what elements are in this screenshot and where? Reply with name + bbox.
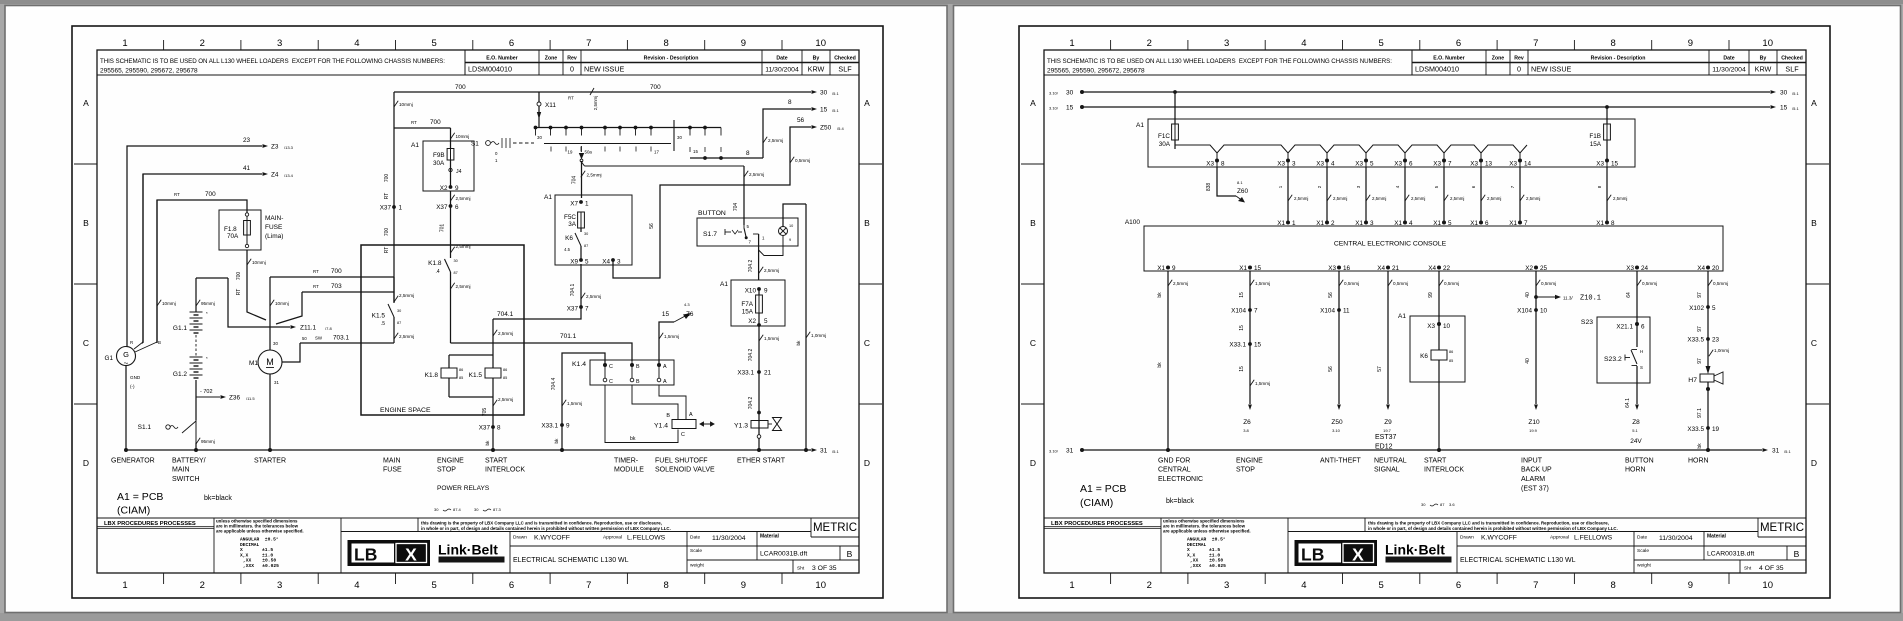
svg-text:56: 56 [1328, 292, 1334, 298]
svg-text:705: 705 [482, 408, 488, 417]
svg-text:2,5mmj: 2,5mmj [764, 268, 779, 273]
svg-text:X2: X2 [440, 185, 448, 192]
svg-text:G1: G1 [104, 355, 113, 362]
svg-text:K1.8: K1.8 [428, 260, 442, 267]
svg-text:40: 40 [1525, 358, 1531, 364]
svg-text:19: 19 [1712, 426, 1720, 433]
svg-text:Z6: Z6 [1243, 419, 1251, 426]
svg-text:RT: RT [313, 269, 319, 274]
svg-text:X: X [1352, 545, 1364, 565]
svg-text:9: 9 [455, 185, 459, 192]
svg-text:5: 5 [764, 318, 768, 325]
svg-text:85: 85 [459, 376, 463, 380]
svg-text:A: A [663, 379, 667, 385]
svg-text:Zone: Zone [545, 56, 558, 62]
svg-text:(CIAM): (CIAM) [1080, 497, 1113, 509]
svg-text:16: 16 [1343, 265, 1351, 272]
svg-text:30: 30 [273, 341, 278, 346]
svg-text:97: 97 [1697, 358, 1703, 364]
svg-text:RT: RT [236, 289, 242, 296]
svg-text:K1.4: K1.4 [572, 361, 586, 368]
svg-text:15: 15 [1239, 366, 1245, 372]
svg-text:X3: X3 [1328, 265, 1336, 272]
svg-text:11/30/2004: 11/30/2004 [1659, 535, 1693, 542]
svg-text:Z50: Z50 [1331, 419, 1343, 426]
svg-text:15: 15 [1239, 325, 1245, 331]
svg-text:7: 7 [585, 306, 589, 313]
svg-text:10: 10 [815, 38, 826, 49]
svg-text:Z50: Z50 [820, 125, 832, 132]
svg-text:56: 56 [1328, 366, 1334, 372]
svg-text:3: 3 [1224, 38, 1229, 49]
svg-text:2,5mmj: 2,5mmj [1294, 196, 1308, 201]
svg-text:FUSE: FUSE [383, 467, 402, 474]
svg-text:64: 64 [1626, 292, 1632, 298]
svg-text:1: 1 [585, 201, 589, 208]
svg-text:2: 2 [1147, 38, 1152, 49]
svg-text:X4: X4 [1428, 265, 1436, 272]
svg-text:97: 97 [1697, 326, 1703, 332]
svg-text:bk: bk [554, 438, 559, 444]
svg-text:ETHER START: ETHER START [737, 458, 786, 465]
svg-text:E.O. Number: E.O. Number [486, 56, 517, 62]
svg-text:- 702: - 702 [200, 389, 213, 395]
svg-text:31: 31 [820, 448, 828, 455]
svg-text:bk: bk [485, 440, 490, 446]
svg-text:10: 10 [1762, 580, 1773, 591]
svg-text:4: 4 [354, 580, 359, 591]
svg-text:9: 9 [566, 423, 570, 430]
svg-text:86: 86 [1449, 350, 1453, 354]
svg-text:704.2: 704.2 [748, 397, 754, 410]
svg-text:23: 23 [1712, 337, 1720, 344]
svg-text:/5.1: /5.1 [832, 449, 839, 454]
svg-text:bk: bk [1157, 362, 1163, 368]
svg-text:1,5mmj: 1,5mmj [764, 336, 779, 341]
svg-text:21: 21 [1392, 265, 1400, 272]
svg-text:X7: X7 [570, 201, 578, 208]
svg-text:S1.7: S1.7 [703, 231, 717, 238]
svg-text:1: 1 [1069, 38, 1074, 49]
svg-text:Approval: Approval [603, 535, 622, 541]
svg-text:B: B [847, 549, 853, 559]
svg-text:X4: X4 [1377, 265, 1385, 272]
svg-text:86: 86 [503, 368, 507, 372]
svg-text:SWITCH: SWITCH [172, 476, 200, 483]
svg-text:6: 6 [455, 204, 459, 211]
svg-text:Material: Material [1707, 534, 1727, 540]
svg-text:2,5mmj: 2,5mmj [587, 173, 602, 178]
svg-text:23: 23 [243, 137, 251, 144]
svg-text:bk: bk [796, 340, 801, 346]
svg-text:E.O. Number: E.O. Number [1433, 56, 1464, 62]
svg-text:BUTTON: BUTTON [1625, 458, 1654, 465]
svg-text:TIMER-: TIMER- [614, 458, 639, 465]
svg-text:INTERLOCK: INTERLOCK [1424, 467, 1464, 474]
svg-text:.5: .5 [381, 321, 385, 327]
svg-text:LB: LB [1301, 545, 1324, 565]
svg-text:86: 86 [459, 368, 463, 372]
svg-text:ALARM: ALARM [1521, 476, 1545, 483]
svg-text:DECIMAL: DECIMAL [1187, 542, 1207, 548]
svg-text:A: A [1811, 98, 1817, 108]
svg-text:15: 15 [693, 149, 698, 154]
svg-text:BUTTON: BUTTON [698, 210, 726, 217]
svg-text:87.4: 87.4 [453, 507, 462, 512]
svg-text:700: 700 [205, 191, 216, 198]
svg-text:6: 6 [1456, 38, 1461, 49]
svg-text:19.9: 19.9 [1529, 428, 1538, 433]
svg-text:MAIN-: MAIN- [265, 215, 283, 222]
svg-text:M: M [266, 357, 274, 367]
svg-text:4.5: 4.5 [564, 247, 570, 252]
svg-text:1: 1 [122, 38, 127, 49]
svg-text:10: 10 [1762, 38, 1773, 49]
svg-text:F1.8: F1.8 [224, 226, 237, 233]
svg-text:30: 30 [1780, 90, 1788, 97]
svg-text:K6: K6 [565, 235, 573, 242]
svg-text:3: 3 [1292, 161, 1296, 168]
svg-text:G1.2: G1.2 [173, 371, 187, 378]
svg-text:5: 5 [1379, 38, 1384, 49]
svg-text:30A: 30A [433, 160, 445, 167]
svg-text:Scale: Scale [690, 548, 702, 554]
svg-text:X11: X11 [545, 102, 556, 109]
svg-text:9: 9 [1688, 580, 1693, 591]
svg-text:MODULE: MODULE [614, 467, 644, 474]
svg-text:X21.1: X21.1 [1616, 324, 1633, 331]
svg-text:RT: RT [384, 193, 390, 200]
svg-text:2,5mmj: 2,5mmj [1411, 196, 1425, 201]
svg-text:DECIMAL: DECIMAL [240, 542, 260, 548]
svg-text:8: 8 [1221, 161, 1225, 168]
svg-text:SLF: SLF [1785, 65, 1799, 74]
svg-text:0,5mmj: 0,5mmj [1642, 281, 1657, 286]
svg-text:31: 31 [1066, 448, 1074, 455]
svg-text:METRIC: METRIC [1760, 522, 1804, 534]
svg-text:15: 15 [1611, 161, 1619, 168]
svg-text:K6: K6 [1420, 353, 1428, 360]
svg-text:4: 4 [354, 38, 359, 49]
svg-text:87: 87 [1440, 502, 1445, 507]
svg-text:in whole or in part, of design: in whole or in part, of design and detai… [421, 526, 671, 531]
svg-text:NEW ISSUE: NEW ISSUE [584, 65, 625, 74]
svg-text:MAIN: MAIN [383, 458, 401, 465]
svg-text:C: C [83, 338, 89, 348]
svg-text:,XX ±0.50: ,XX ±0.50 [1190, 558, 1223, 564]
svg-text:10mmj: 10mmj [275, 301, 289, 306]
svg-text:30: 30 [584, 232, 588, 236]
svg-text:By: By [1760, 56, 1767, 62]
svg-text:B: B [83, 218, 89, 228]
svg-text:ENGINE: ENGINE [1236, 458, 1263, 465]
svg-text:X2: X2 [1525, 265, 1533, 272]
svg-text:15A: 15A [742, 309, 754, 316]
svg-text:10mmj: 10mmj [162, 301, 176, 306]
svg-text:2,5mmj: 2,5mmj [456, 196, 471, 201]
svg-text:25: 25 [1540, 265, 1548, 272]
svg-text:F5C: F5C [564, 214, 576, 221]
svg-text:RT: RT [384, 247, 390, 254]
svg-text:bk: bk [1697, 443, 1703, 449]
svg-text:3: 3 [1224, 580, 1229, 591]
svg-text:30: 30 [820, 90, 828, 97]
svg-text:X,X ±1.0: X,X ±1.0 [240, 552, 273, 558]
svg-text:By: By [813, 56, 820, 62]
svg-text:weight: weight [690, 563, 705, 569]
svg-text:21: 21 [764, 370, 772, 377]
svg-text:A: A [83, 98, 89, 108]
svg-text:Date: Date [690, 535, 700, 541]
svg-text:J4: J4 [456, 169, 462, 175]
svg-text:Z10.1: Z10.1 [1580, 295, 1601, 303]
svg-text:8: 8 [788, 99, 792, 106]
svg-text:CENTRAL ELECTRONIC CONSOLE: CENTRAL ELECTRONIC CONSOLE [1334, 241, 1447, 248]
svg-text:GND FOR: GND FOR [1158, 458, 1190, 465]
svg-text:STOP: STOP [1236, 467, 1255, 474]
svg-text:(-): (-) [130, 384, 135, 389]
svg-text:,XXX ±0.025: ,XXX ±0.025 [1190, 563, 1226, 569]
svg-text:Z36: Z36 [229, 395, 240, 402]
svg-text:F7A: F7A [741, 301, 753, 308]
svg-text:0,5mmj: 0,5mmj [1541, 281, 1556, 286]
svg-text:A1 = PCB: A1 = PCB [117, 491, 163, 503]
svg-text:A: A [689, 412, 693, 418]
svg-text:/5.1: /5.1 [1792, 91, 1799, 96]
svg-text:HORN: HORN [1625, 467, 1646, 474]
svg-text:2,5mmj: 2,5mmj [456, 284, 471, 289]
svg-text:Date: Date [1637, 535, 1647, 541]
svg-text:this drawing is the property o: this drawing is the property of LBX Comp… [421, 521, 662, 526]
svg-text:M1: M1 [249, 360, 258, 367]
svg-text:1: 1 [1069, 580, 1074, 591]
svg-text:C: C [1811, 338, 1817, 348]
svg-text:8: 8 [663, 38, 668, 49]
svg-text:Approval: Approval [1550, 535, 1569, 541]
svg-text:704: 704 [733, 203, 739, 212]
svg-text:X3: X3 [1626, 265, 1634, 272]
svg-text:30: 30 [474, 507, 479, 512]
svg-text:10: 10 [1540, 308, 1548, 315]
svg-text:/7.8: /7.8 [325, 326, 332, 331]
svg-text:11: 11 [1343, 308, 1350, 315]
svg-text:X3: X3 [1316, 161, 1324, 168]
svg-text:9: 9 [789, 238, 791, 242]
svg-text:7: 7 [586, 580, 591, 591]
svg-text:F1C: F1C [1158, 133, 1170, 140]
svg-text:X102: X102 [1689, 305, 1704, 312]
svg-text:ANGULAR ±0.5°: ANGULAR ±0.5° [240, 537, 279, 543]
svg-text:B: B [666, 413, 670, 419]
svg-text:10: 10 [815, 580, 826, 591]
svg-text:/13.4: /13.4 [284, 173, 294, 178]
svg-text:6: 6 [509, 38, 514, 49]
svg-text:4: 4 [1331, 161, 1335, 168]
svg-text:X3: X3 [1470, 161, 1478, 168]
svg-text:56: 56 [649, 223, 655, 229]
svg-text:(CIAM): (CIAM) [117, 505, 150, 517]
svg-text:8: 8 [497, 425, 501, 432]
svg-text:A1: A1 [1136, 122, 1144, 129]
svg-text:C: C [864, 338, 870, 348]
svg-text:24V: 24V [1630, 438, 1642, 445]
svg-text:Revision - Description: Revision - Description [644, 56, 699, 62]
svg-text:/5.4: /5.4 [837, 126, 844, 131]
svg-text:F1B: F1B [1589, 133, 1601, 140]
svg-text:X37: X37 [479, 425, 491, 432]
svg-text:STOP: STOP [437, 467, 456, 474]
svg-text:X3: X3 [1596, 161, 1604, 168]
svg-text:Sht: Sht [797, 566, 805, 572]
svg-text:GND: GND [130, 375, 141, 380]
svg-text:Material: Material [760, 534, 780, 540]
svg-text:700: 700 [455, 84, 466, 91]
svg-text:X3: X3 [1277, 161, 1285, 168]
svg-text:700: 700 [650, 84, 661, 91]
svg-text:K1.5: K1.5 [372, 313, 386, 320]
svg-text:H: H [1640, 349, 1643, 354]
svg-text:weight: weight [1637, 563, 1652, 569]
svg-text:X1: X1 [1157, 265, 1165, 272]
svg-text:2,5mmj: 2,5mmj [498, 331, 513, 336]
svg-text:2,5mmj: 2,5mmj [1372, 196, 1386, 201]
svg-text:KRW: KRW [1755, 65, 1772, 74]
svg-text:41: 41 [243, 165, 251, 172]
svg-text:X104: X104 [1517, 308, 1532, 315]
svg-text:3.10/: 3.10/ [1049, 106, 1059, 111]
svg-text:X33.1: X33.1 [737, 370, 754, 377]
svg-text:METRIC: METRIC [813, 522, 857, 534]
svg-text:10: 10 [1443, 323, 1451, 330]
svg-text:X104: X104 [1320, 308, 1335, 315]
svg-text:X3: X3 [1355, 161, 1363, 168]
svg-text:C: C [1030, 338, 1036, 348]
svg-text:RT: RT [411, 120, 417, 125]
svg-text:700: 700 [384, 228, 390, 237]
svg-text:this drawing is the property o: this drawing is the property of LBX Comp… [1368, 521, 1609, 526]
svg-text:2,5mmj: 2,5mmj [749, 172, 764, 177]
svg-text:704.2: 704.2 [748, 260, 754, 273]
svg-text:K1.8: K1.8 [425, 372, 439, 379]
svg-text:4: 4 [1301, 38, 1306, 49]
svg-text:D: D [1030, 458, 1036, 468]
svg-text:MAIN: MAIN [172, 467, 190, 474]
svg-text:X33.5: X33.5 [1687, 337, 1704, 344]
svg-text:5: 5 [432, 580, 437, 591]
svg-text:19: 19 [568, 150, 573, 155]
svg-text:2: 2 [1147, 580, 1152, 591]
svg-text:Date: Date [776, 56, 787, 62]
svg-text:0: 0 [570, 65, 574, 74]
svg-text:2,5mmj: 2,5mmj [399, 334, 414, 339]
svg-text:SIGNAL: SIGNAL [1374, 467, 1400, 474]
svg-text:704.1: 704.1 [570, 284, 576, 297]
svg-text:bk: bk [630, 436, 636, 442]
svg-text:4.3: 4.3 [684, 302, 690, 307]
svg-text:56: 56 [797, 117, 805, 124]
svg-text:ELECTRONIC: ELECTRONIC [1158, 476, 1203, 483]
svg-text:X1: X1 [1239, 265, 1247, 272]
svg-text:7: 7 [1448, 161, 1452, 168]
svg-text:bk: bk [1157, 292, 1163, 298]
svg-text:Z11.1: Z11.1 [300, 325, 317, 332]
svg-text:701.1: 701.1 [560, 333, 577, 340]
svg-text:10mmj: 10mmj [399, 102, 413, 107]
svg-text:A: A [663, 364, 667, 370]
svg-text:RT: RT [313, 284, 319, 289]
svg-text:are applicable unless otherwis: are applicable unless otherwise specifie… [216, 528, 304, 533]
svg-text:15: 15 [1254, 265, 1262, 272]
svg-text:KRW: KRW [808, 65, 825, 74]
svg-text:ELECTRICAL SCHEMATIC L130 WL: ELECTRICAL SCHEMATIC L130 WL [513, 557, 629, 564]
svg-text:838: 838 [1206, 183, 1212, 192]
svg-text:30: 30 [397, 309, 401, 313]
svg-text:0,5mmj: 0,5mmj [795, 158, 810, 163]
svg-text:30: 30 [537, 135, 542, 140]
svg-text:87: 87 [584, 244, 588, 248]
svg-text:3A: 3A [568, 221, 577, 228]
svg-text:11/30/2004: 11/30/2004 [712, 535, 746, 542]
svg-text:STARTER: STARTER [254, 458, 286, 465]
svg-text:2,5mmj: 2,5mmj [1450, 196, 1464, 201]
svg-text:NEW ISSUE: NEW ISSUE [1531, 65, 1572, 74]
svg-text:A1: A1 [411, 142, 419, 149]
svg-text:6: 6 [1641, 324, 1645, 331]
svg-text:87.3: 87.3 [493, 507, 502, 512]
svg-text:X104: X104 [1231, 308, 1246, 315]
svg-text:30: 30 [434, 507, 439, 512]
svg-text:19.7: 19.7 [1383, 428, 1392, 433]
svg-text:15: 15 [1066, 105, 1074, 112]
svg-text:700: 700 [384, 174, 390, 183]
svg-text:700: 700 [331, 268, 342, 275]
svg-text:H7: H7 [1688, 377, 1697, 384]
svg-text:700: 700 [236, 272, 242, 281]
svg-text:POWER RELAYS: POWER RELAYS [437, 485, 490, 492]
svg-text:G1.1: G1.1 [173, 325, 187, 332]
svg-text:,XXX ±0.025: ,XXX ±0.025 [243, 563, 279, 569]
svg-text:15: 15 [1254, 342, 1262, 349]
svg-text:13: 13 [1485, 161, 1493, 168]
svg-text:X33.1: X33.1 [541, 423, 558, 430]
svg-text:6: 6 [509, 580, 514, 591]
svg-text:20: 20 [1712, 265, 1720, 272]
svg-text:3 OF 35: 3 OF 35 [812, 565, 837, 572]
svg-text:11/30/2004: 11/30/2004 [1712, 67, 1746, 74]
svg-text:/13.3: /13.3 [284, 145, 294, 150]
svg-text:6: 6 [1456, 580, 1461, 591]
svg-text:11.3/: 11.3/ [1563, 296, 1573, 301]
svg-text:X37: X37 [567, 306, 579, 313]
svg-text:bk=black: bk=black [1166, 498, 1194, 505]
svg-text:A: A [1030, 98, 1036, 108]
svg-text:701: 701 [440, 224, 446, 233]
svg-text:*: * [206, 311, 208, 316]
svg-text:A1 = PCB: A1 = PCB [1080, 483, 1126, 495]
svg-text:10mmj: 10mmj [252, 260, 266, 265]
svg-text:8.1: 8.1 [1237, 180, 1243, 185]
svg-text:BATTERY/: BATTERY/ [172, 458, 206, 465]
svg-text:30: 30 [454, 259, 458, 263]
svg-text:64.1: 64.1 [1625, 398, 1631, 408]
svg-text:BACK UP: BACK UP [1521, 467, 1552, 474]
svg-text:X37: X37 [380, 205, 392, 212]
svg-text:5: 5 [1379, 580, 1384, 591]
svg-text:S1: S1 [471, 141, 479, 148]
svg-text:/5.1: /5.1 [832, 108, 839, 113]
svg-text:X ±1.5: X ±1.5 [1187, 547, 1220, 553]
svg-text:Z6: Z6 [686, 311, 694, 318]
